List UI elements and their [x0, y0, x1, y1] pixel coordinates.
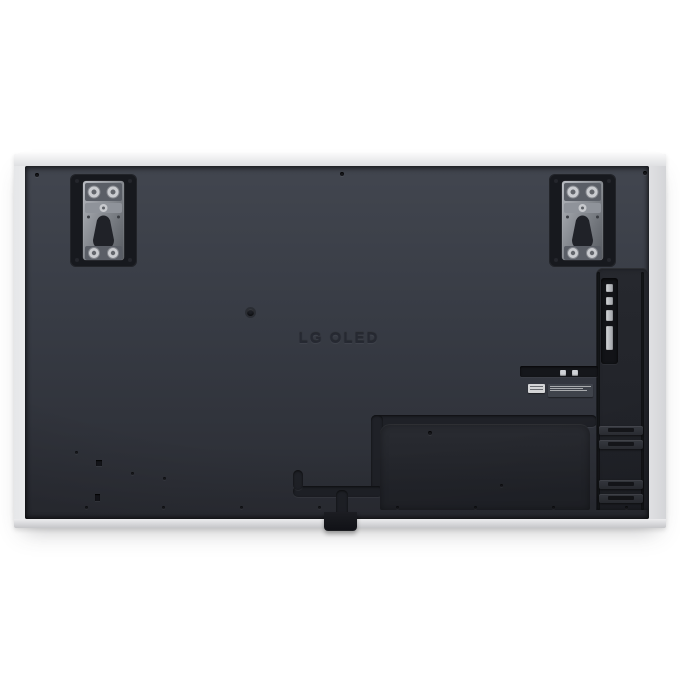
- screw: [340, 172, 344, 176]
- regulatory-label-wide: [548, 384, 593, 397]
- screw: [163, 477, 166, 480]
- label-text-line: [530, 389, 543, 390]
- vesa-mount-right: [549, 174, 616, 267]
- cable-clip-rung: [599, 426, 643, 435]
- electronics-cover: [380, 424, 590, 510]
- bay-groove: [641, 272, 644, 510]
- connector-block: [560, 370, 566, 376]
- cable-bay-right: [596, 268, 649, 510]
- screw: [247, 309, 254, 316]
- usb-port: [606, 297, 613, 305]
- regulatory-label-small: [528, 384, 545, 393]
- tv-rear: LG OLED: [14, 154, 666, 528]
- cable-clip-rung: [599, 480, 643, 489]
- service-hole: [95, 494, 100, 501]
- clip-slot: [608, 482, 634, 486]
- bottom-port-bay: [520, 366, 598, 377]
- screw: [131, 472, 134, 475]
- vesa-bracket-graphic: [549, 174, 616, 267]
- usb-port: [606, 284, 613, 292]
- clip-slot: [608, 496, 634, 500]
- label-text-line: [550, 388, 583, 389]
- screw: [75, 451, 78, 454]
- cable-channel-stub: [293, 470, 303, 490]
- hdmi-port: [606, 326, 613, 350]
- cable-clip-rung: [599, 494, 643, 503]
- screw: [396, 506, 399, 509]
- label-text-line: [550, 386, 591, 387]
- screw: [318, 506, 321, 509]
- screw: [428, 431, 432, 435]
- screw: [643, 171, 647, 175]
- screw: [500, 484, 503, 487]
- screw: [162, 506, 165, 509]
- screw: [35, 173, 39, 177]
- product-photo: LG OLED: [0, 0, 680, 680]
- vesa-bracket-graphic: [70, 174, 137, 267]
- screw: [474, 506, 477, 509]
- stand-mount-tab: [324, 512, 357, 531]
- screw: [85, 506, 88, 509]
- tv-back-panel: LG OLED: [25, 166, 649, 519]
- side-port-panel: [601, 278, 618, 364]
- hdmi-port: [606, 310, 613, 321]
- label-text-line: [530, 386, 543, 387]
- cable-clip-upper: [599, 426, 643, 449]
- cable-clip-lower: [599, 480, 643, 503]
- clip-slot: [608, 442, 634, 446]
- clip-slot: [608, 428, 634, 432]
- screw: [625, 506, 628, 509]
- screw: [552, 506, 555, 509]
- cable-clip-rung: [599, 440, 643, 449]
- bay-groove: [597, 272, 600, 510]
- service-hole: [96, 460, 102, 466]
- connector-block: [572, 370, 578, 376]
- screw: [240, 506, 243, 509]
- brand-logo: LG OLED: [293, 328, 385, 348]
- vesa-mount-left: [70, 174, 137, 267]
- label-text-line: [550, 390, 587, 391]
